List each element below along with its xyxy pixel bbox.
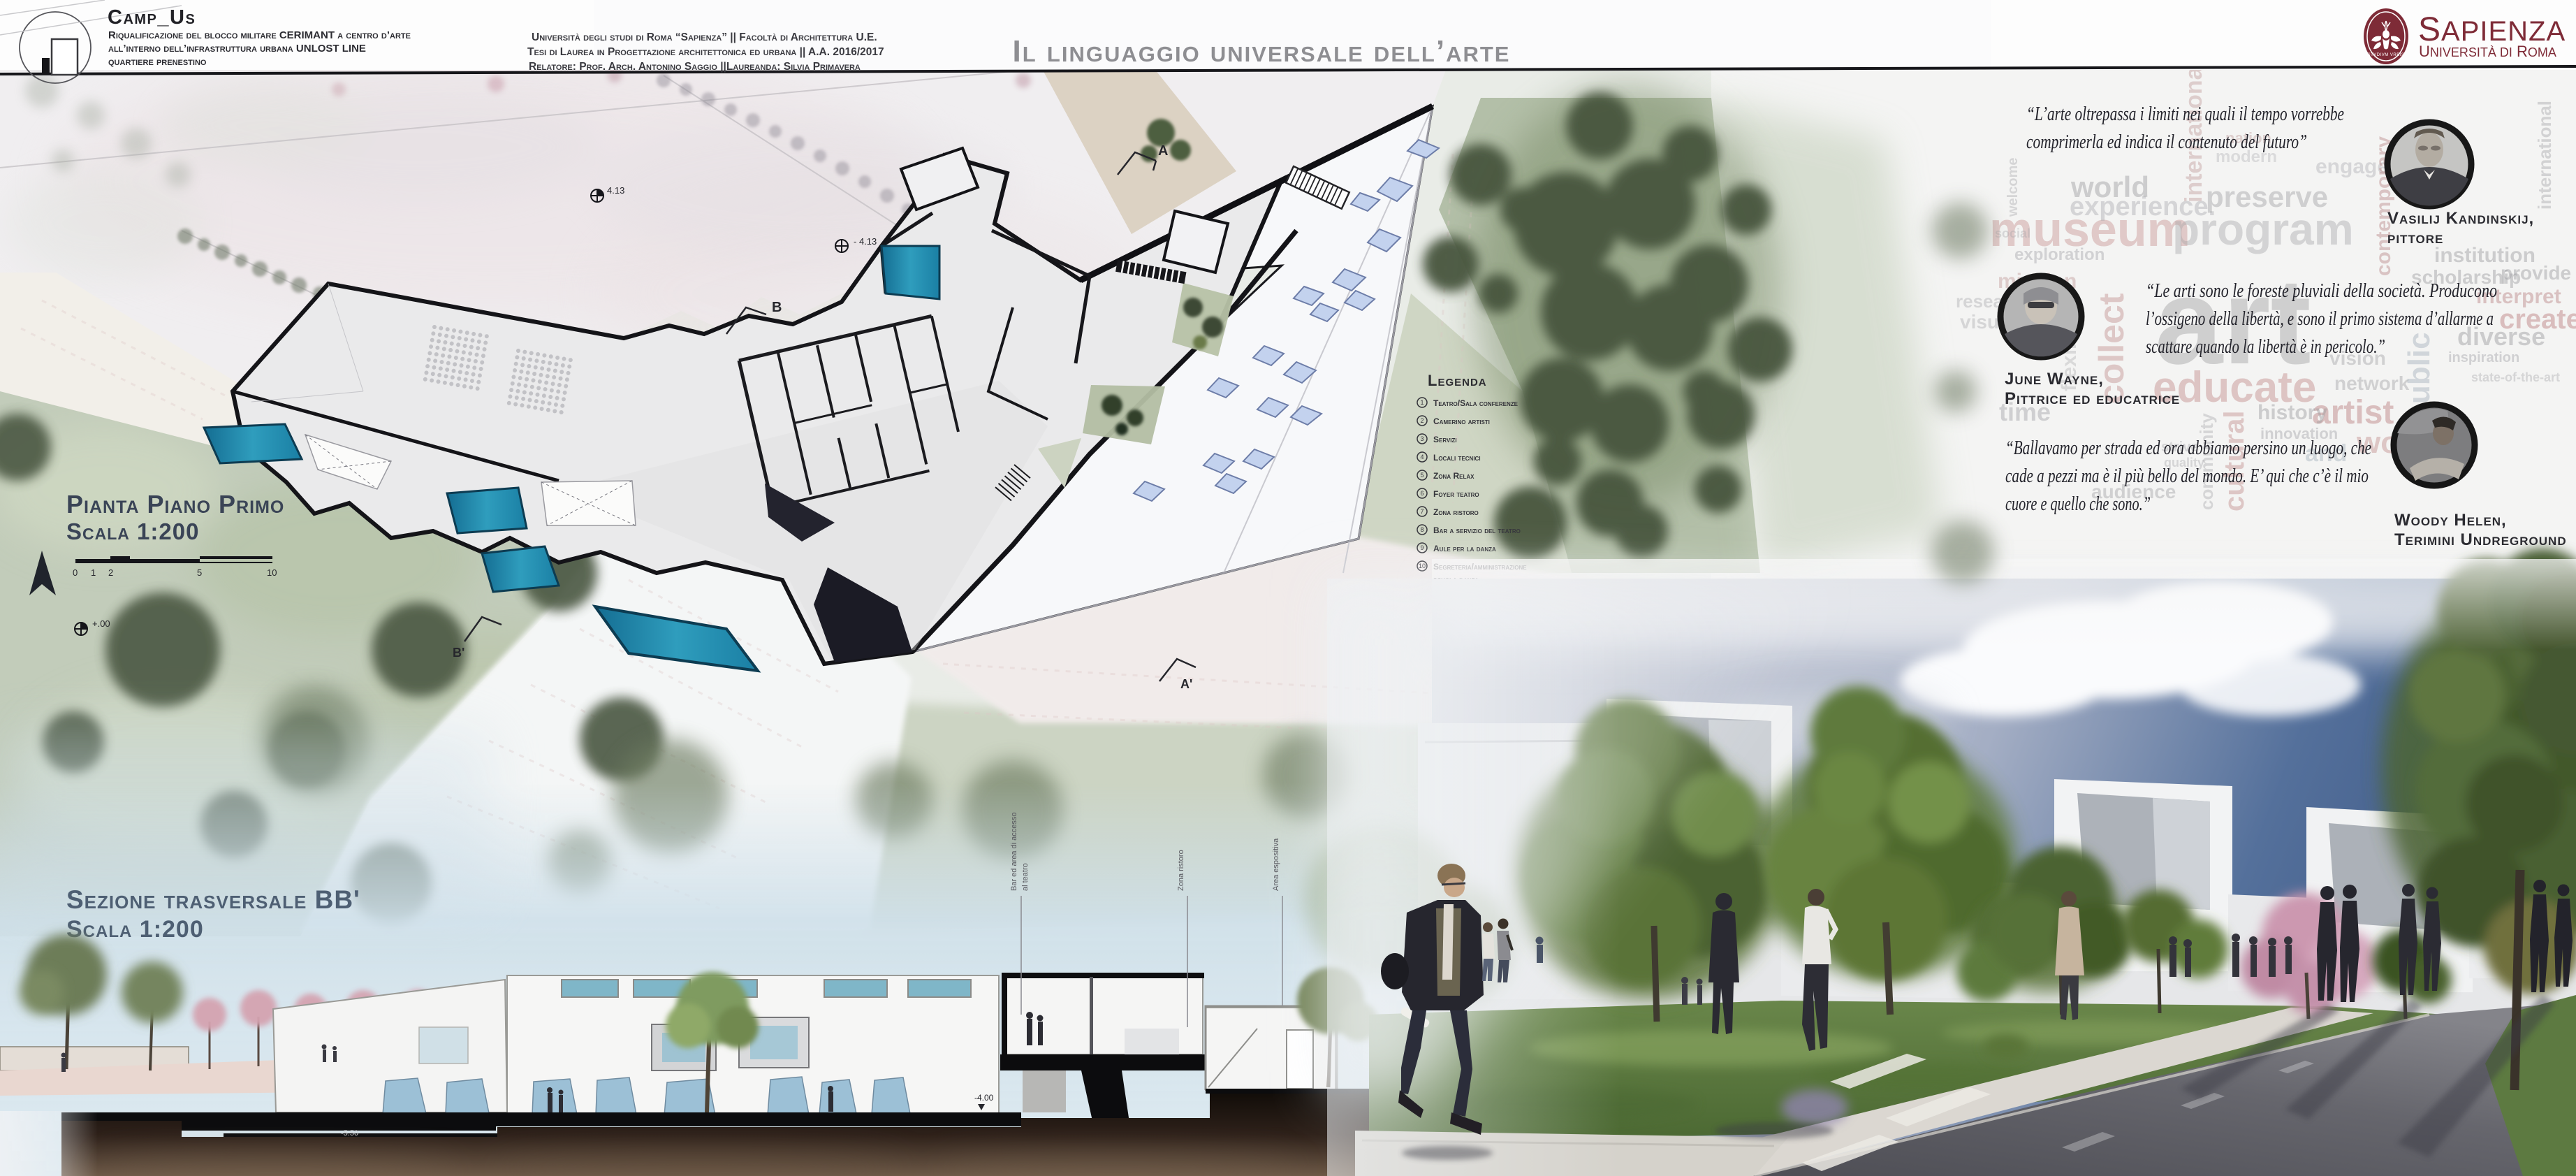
svg-text:Relatore: Prof. Arch. Antonino: Relatore: Prof. Arch. Antonino Saggio ||… xyxy=(529,61,861,73)
svg-text:Camp_Us: Camp_Us xyxy=(108,6,196,29)
svg-text:Teatro/Sala conferenze: Teatro/Sala conferenze xyxy=(1433,398,1518,408)
svg-text:Scala 1:200: Scala 1:200 xyxy=(66,518,199,544)
svg-text:social: social xyxy=(1995,226,2030,240)
svg-text:“Ballavamo per strada ed ora a: “Ballavamo per strada ed ora abbiamo per… xyxy=(2005,437,2371,459)
svg-text:Università degli studi di Roma: Università degli studi di Roma “Sapienza… xyxy=(532,31,877,43)
svg-text:Zona ristoro: Zona ristoro xyxy=(1433,507,1479,517)
svg-text:exploration: exploration xyxy=(2014,245,2105,264)
svg-text:B': B' xyxy=(453,646,464,660)
svg-text:state-of-the-art: state-of-the-art xyxy=(2471,370,2560,384)
svg-text:A': A' xyxy=(1180,677,1192,691)
svg-text:Tesi di Laurea in Progettazion: Tesi di Laurea in Progettazione architet… xyxy=(527,46,884,58)
svg-text:4: 4 xyxy=(1420,453,1424,460)
svg-text:Servizi: Servizi xyxy=(1433,435,1457,444)
svg-text:inspiration: inspiration xyxy=(2448,350,2519,365)
svg-text:l’ossigeno della libertà, e so: l’ossigeno della libertà, e sono il prim… xyxy=(2146,308,2494,330)
svg-text:5: 5 xyxy=(197,567,202,578)
svg-text:Terimini Undreground: Terimini Undreground xyxy=(2394,530,2567,549)
svg-text:0: 0 xyxy=(73,567,78,578)
svg-text:cade a pezzi ma è il più bello: cade a pezzi ma è il più bello del mondo… xyxy=(2005,465,2369,487)
svg-text:welcome: welcome xyxy=(2005,158,2021,217)
svg-text:Riqualificazione del blocco mi: Riqualificazione del blocco militare CER… xyxy=(108,29,411,41)
svg-text:network: network xyxy=(2334,372,2410,394)
svg-text:provide: provide xyxy=(2501,262,2571,284)
svg-text:1: 1 xyxy=(1420,399,1424,406)
svg-text:Area espositiva: Area espositiva xyxy=(1272,838,1280,891)
svg-text:A: A xyxy=(1158,143,1168,159)
svg-text:“L’arte oltrepassa i limiti ne: “L’arte oltrepassa i limiti nei quali il… xyxy=(2026,103,2344,125)
svg-text:Zona ristoro: Zona ristoro xyxy=(1177,850,1185,891)
svg-text:STVDIVM VRBIS: STVDIVM VRBIS xyxy=(2368,53,2405,57)
svg-text:preserve: preserve xyxy=(2206,180,2328,213)
svg-text:10: 10 xyxy=(267,567,277,578)
svg-text:3: 3 xyxy=(1420,435,1424,442)
svg-text:Foyer teatro: Foyer teatro xyxy=(1433,489,1479,499)
svg-text:cuore e quello che sono.”: cuore e quello che sono.” xyxy=(2005,493,2151,515)
svg-text:6: 6 xyxy=(1420,490,1424,497)
svg-text:“Le arti sono le foreste pluvi: “Le arti sono le foreste pluviali della … xyxy=(2146,280,2497,302)
svg-text:Sezione trasversale BB': Sezione trasversale BB' xyxy=(66,885,360,914)
svg-text:2: 2 xyxy=(108,567,113,578)
svg-text:Bar a servizio del teatro: Bar a servizio del teatro xyxy=(1433,525,1521,535)
svg-text:Woody Helen,: Woody Helen, xyxy=(2394,511,2507,530)
svg-text:history: history xyxy=(2257,401,2327,424)
svg-text:scattare quando la libertà è i: scattare quando la libertà è in pericolo… xyxy=(2146,336,2385,358)
svg-text:cultural: cultural xyxy=(2219,411,2250,511)
svg-text:Locali tecnici: Locali tecnici xyxy=(1433,453,1481,463)
svg-text:June Wayne,: June Wayne, xyxy=(2005,370,2104,389)
svg-text:Camerino artisti: Camerino artisti xyxy=(1433,416,1490,426)
svg-text:-4.00: -4.00 xyxy=(974,1093,994,1103)
svg-text:Pianta Piano Primo: Pianta Piano Primo xyxy=(66,490,284,518)
svg-text:al teatro: al teatro xyxy=(1021,863,1030,891)
svg-text:Bar ed area di accesso: Bar ed area di accesso xyxy=(1010,812,1018,891)
svg-text:Scala 1:200: Scala 1:200 xyxy=(66,916,204,943)
svg-text:all’interno dell’infrastruttur: all’interno dell’infrastruttura urbana U… xyxy=(108,43,366,55)
svg-text:10: 10 xyxy=(1419,562,1426,569)
svg-text:Il linguaggio universale dell’: Il linguaggio universale dell’arte xyxy=(1013,34,1511,68)
svg-text:comprimerla ed indica il conte: comprimerla ed indica il contenuto del f… xyxy=(2026,131,2307,153)
svg-text:9: 9 xyxy=(1420,544,1424,551)
svg-text:Aule per la danza: Aule per la danza xyxy=(1433,544,1496,553)
svg-text:Legenda: Legenda xyxy=(1428,372,1487,389)
svg-text:international: international xyxy=(2534,101,2555,210)
svg-text:Vasilij Kandinskij,: Vasilij Kandinskij, xyxy=(2387,209,2534,228)
svg-text:UNIVERSITÀ DI ROMA: UNIVERSITÀ DI ROMA xyxy=(2419,43,2556,60)
svg-text:Pittrice ed educatrice: Pittrice ed educatrice xyxy=(2005,389,2180,408)
svg-text:4.13: 4.13 xyxy=(607,185,624,196)
svg-text:2: 2 xyxy=(1420,417,1424,424)
svg-text:B: B xyxy=(772,300,782,315)
svg-text:SAPIENZA: SAPIENZA xyxy=(2418,11,2566,48)
svg-text:+.00: +.00 xyxy=(92,618,110,629)
svg-text:- 4.13: - 4.13 xyxy=(854,236,877,247)
svg-text:7: 7 xyxy=(1420,508,1424,515)
svg-text:Zona Relax: Zona Relax xyxy=(1433,471,1474,481)
svg-text:quartiere prenestino: quartiere prenestino xyxy=(108,56,207,68)
svg-text:-5.50: -5.50 xyxy=(341,1129,358,1138)
svg-text:5: 5 xyxy=(1420,472,1424,479)
svg-text:8: 8 xyxy=(1420,526,1424,533)
svg-text:1: 1 xyxy=(91,567,96,578)
svg-text:pittore: pittore xyxy=(2387,228,2443,247)
